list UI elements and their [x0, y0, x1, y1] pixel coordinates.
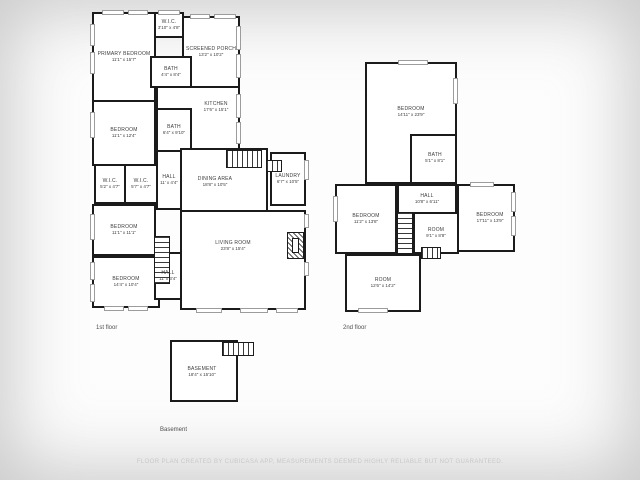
floor-label-basement: Basement	[160, 427, 187, 433]
wic-left-dimensions: 5'2" x 4'7"	[100, 184, 120, 190]
staircase-second-floor-1	[397, 212, 413, 254]
hall-1-label: HALL11' x 4'4"	[160, 174, 178, 186]
bath-2-label: BATH6'4" x 9'10"	[163, 124, 185, 136]
hall-2-dimensions: 11' x 3'4"	[159, 276, 177, 282]
window-marker	[470, 182, 494, 187]
hall-1-dimensions: 11' x 4'4"	[160, 180, 178, 186]
window-marker	[511, 192, 516, 212]
room-1-label: ROOM9'1" x 8'8"	[426, 227, 446, 239]
bedroom-6-dimensions: 11'2" x 13'8"	[352, 219, 379, 225]
hall-3-dimensions: 10'8" x 6'11"	[415, 199, 439, 205]
window-marker	[304, 214, 309, 228]
bath-3-dimensions: 5'1" x 8'1"	[425, 158, 445, 164]
bedroom-5-label: BEDROOM14'11" x 23'9"	[397, 106, 424, 118]
window-marker	[240, 308, 268, 313]
window-marker	[128, 306, 148, 311]
window-marker	[236, 122, 241, 144]
window-marker	[102, 10, 124, 15]
hall-3-label: HALL10'8" x 6'11"	[415, 193, 439, 205]
bedroom-2-dimensions: 11'1" x 12'4"	[110, 133, 137, 139]
fireplace-core	[292, 238, 299, 253]
window-marker	[214, 14, 236, 19]
floor-label-first-floor: 1st floor	[96, 325, 117, 331]
bedroom-4-label: BEDROOM14'4" x 10'4"	[112, 276, 139, 288]
window-marker	[90, 24, 95, 46]
kitchen-dimensions: 17'6" x 15'1"	[204, 107, 229, 113]
window-marker	[158, 10, 180, 15]
kitchen-label: KITCHEN17'6" x 15'1"	[204, 101, 229, 113]
window-marker	[90, 112, 95, 138]
window-marker	[190, 14, 210, 19]
bath-1-dimensions: 4'4" x 8'4"	[161, 72, 181, 78]
window-marker	[453, 78, 458, 104]
staircase-first-floor-2	[266, 160, 282, 172]
wic-top-label: W.I.C.3'10" x 4'8"	[158, 19, 180, 31]
wic-left-label: W.I.C.5'2" x 4'7"	[100, 178, 120, 190]
room-2-label: ROOM12'6" x 14'2"	[371, 277, 396, 289]
window-marker	[196, 308, 222, 313]
disclaimer-text: FLOOR PLAN CREATED BY CUBICASA APP, MEAS…	[0, 459, 640, 465]
wic-right-label: W.I.C.5'7" x 4'7"	[131, 178, 151, 190]
laundry-dimensions: 6'7" x 10'5"	[275, 179, 300, 185]
bedroom-6-label: BEDROOM11'2" x 13'8"	[352, 213, 379, 225]
laundry-label: LAUNDRY6'7" x 10'5"	[275, 173, 300, 185]
window-marker	[104, 306, 124, 311]
bedroom-2-label: BEDROOM11'1" x 12'4"	[110, 127, 137, 139]
primary-bedroom-dimensions: 11'1" x 15'7"	[98, 57, 151, 63]
window-marker	[358, 308, 388, 313]
screened-porch-label: SCREENED PORCH13'2" x 10'2"	[186, 46, 236, 58]
window-marker	[511, 216, 516, 236]
living-room-dimensions: 23'8" x 15'4"	[215, 246, 251, 252]
hall-2-label: HALL11' x 3'4"	[159, 270, 177, 282]
staircase-first-floor-1	[226, 150, 262, 168]
wic-top-dimensions: 3'10" x 4'8"	[158, 25, 180, 31]
floor-label-second-floor: 2nd floor	[343, 325, 366, 331]
wic-right-dimensions: 5'7" x 4'7"	[131, 184, 151, 190]
bath-2-dimensions: 6'4" x 9'10"	[163, 130, 185, 136]
room-1-dimensions: 9'1" x 8'8"	[426, 233, 446, 239]
dining-area-dimensions: 18'8" x 10'5"	[198, 182, 232, 188]
dining-area-label: DINING AREA18'8" x 10'5"	[198, 176, 232, 188]
bath-3-label: BATH5'1" x 8'1"	[425, 152, 445, 164]
primary-bedroom-label: PRIMARY BEDROOM11'1" x 15'7"	[98, 51, 151, 63]
window-marker	[276, 308, 298, 313]
window-marker	[90, 284, 95, 302]
bedroom-3-label: BEDROOM11'1" x 11'1"	[110, 224, 137, 236]
window-marker	[90, 262, 95, 280]
staircase-basement-1	[222, 342, 254, 356]
room-living-room	[180, 210, 306, 310]
window-marker	[304, 160, 309, 180]
window-marker	[236, 54, 241, 78]
screened-porch-dimensions: 13'2" x 10'2"	[186, 52, 236, 58]
staircase-second-floor-2	[421, 247, 441, 259]
bedroom-4-dimensions: 14'4" x 10'4"	[112, 282, 139, 288]
window-marker	[236, 94, 241, 118]
bath-1-label: BATH4'4" x 8'4"	[161, 66, 181, 78]
bedroom-3-dimensions: 11'1" x 11'1"	[110, 230, 137, 236]
floor-plan-canvas: FLOOR PLAN CREATED BY CUBICASA APP, MEAS…	[0, 0, 640, 480]
bedroom-7-dimensions: 17'11" x 13'9"	[476, 218, 503, 224]
window-marker	[304, 262, 309, 276]
bedroom-7-label: BEDROOM17'11" x 13'9"	[476, 212, 503, 224]
room-2-dimensions: 12'6" x 14'2"	[371, 283, 396, 289]
window-marker	[90, 52, 95, 74]
basement-room-label: BASEMENT18'4" x 15'10"	[187, 366, 216, 378]
window-marker	[236, 26, 241, 50]
window-marker	[90, 214, 95, 240]
window-marker	[398, 60, 428, 65]
living-room-label: LIVING ROOM23'8" x 15'4"	[215, 240, 251, 252]
window-marker	[128, 10, 148, 15]
window-marker	[333, 196, 338, 222]
basement-room-dimensions: 18'4" x 15'10"	[187, 372, 216, 378]
bedroom-5-dimensions: 14'11" x 23'9"	[397, 112, 424, 118]
